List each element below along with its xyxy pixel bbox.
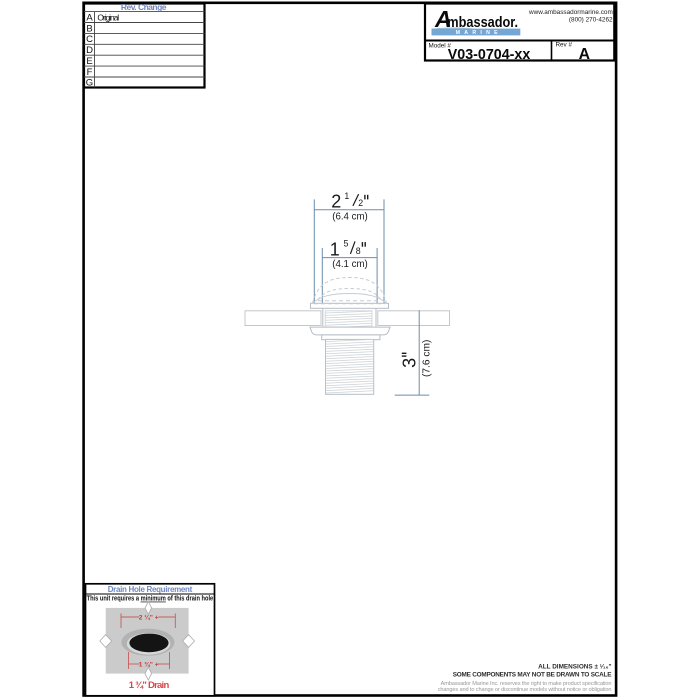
svg-text:V03-0704-xx: V03-0704-xx bbox=[448, 47, 531, 63]
svg-text:A: A bbox=[86, 12, 93, 23]
svg-text:(6.4 cm): (6.4 cm) bbox=[332, 212, 368, 223]
svg-text:changes and to change or disco: changes and to change or discontinue mod… bbox=[438, 687, 612, 693]
svg-text:1: 1 bbox=[344, 191, 349, 201]
svg-text:D: D bbox=[86, 45, 93, 56]
svg-text:MARINE: MARINE bbox=[456, 30, 502, 36]
svg-text:(7.6 cm): (7.6 cm) bbox=[421, 340, 432, 377]
svg-text:2: 2 bbox=[331, 192, 341, 212]
svg-text:3: 3 bbox=[399, 358, 419, 368]
svg-text:F: F bbox=[87, 67, 93, 78]
svg-text:1 ¾" +: 1 ¾" + bbox=[139, 660, 159, 668]
svg-text:This unit requires a minimum o: This unit requires a minimum of this dra… bbox=[87, 596, 214, 603]
svg-text:(800) 270-4262: (800) 270-4262 bbox=[569, 17, 613, 24]
svg-text:2 ¼" +: 2 ¼" + bbox=[139, 613, 159, 621]
svg-text:2: 2 bbox=[358, 198, 363, 208]
svg-text:Rev #: Rev # bbox=[556, 42, 573, 49]
svg-text:G: G bbox=[86, 78, 93, 89]
svg-text:(4.1 cm): (4.1 cm) bbox=[332, 259, 368, 270]
svg-text:Drain Hole Requirement: Drain Hole Requirement bbox=[108, 585, 193, 594]
svg-text:8: 8 bbox=[356, 246, 361, 256]
svg-text:C: C bbox=[86, 34, 93, 45]
svg-text:5: 5 bbox=[343, 239, 348, 249]
svg-text:www.ambassadormarine.com: www.ambassadormarine.com bbox=[528, 9, 613, 16]
svg-text:SOME COMPONENTS MAY NOT BE DRA: SOME COMPONENTS MAY NOT BE DRAWN TO SCAL… bbox=[453, 671, 613, 678]
svg-text:A: A bbox=[579, 46, 590, 63]
svg-text:ALL DIMENSIONS ± ¹⁄₁₆": ALL DIMENSIONS ± ¹⁄₁₆" bbox=[538, 664, 611, 671]
svg-text:1: 1 bbox=[330, 239, 340, 259]
svg-text:E: E bbox=[86, 56, 92, 67]
svg-text:Rev. Change: Rev. Change bbox=[121, 2, 167, 12]
svg-text:Original: Original bbox=[97, 12, 119, 22]
svg-text:B: B bbox=[86, 23, 92, 34]
svg-text:1 ¾" Drain: 1 ¾" Drain bbox=[129, 680, 170, 691]
